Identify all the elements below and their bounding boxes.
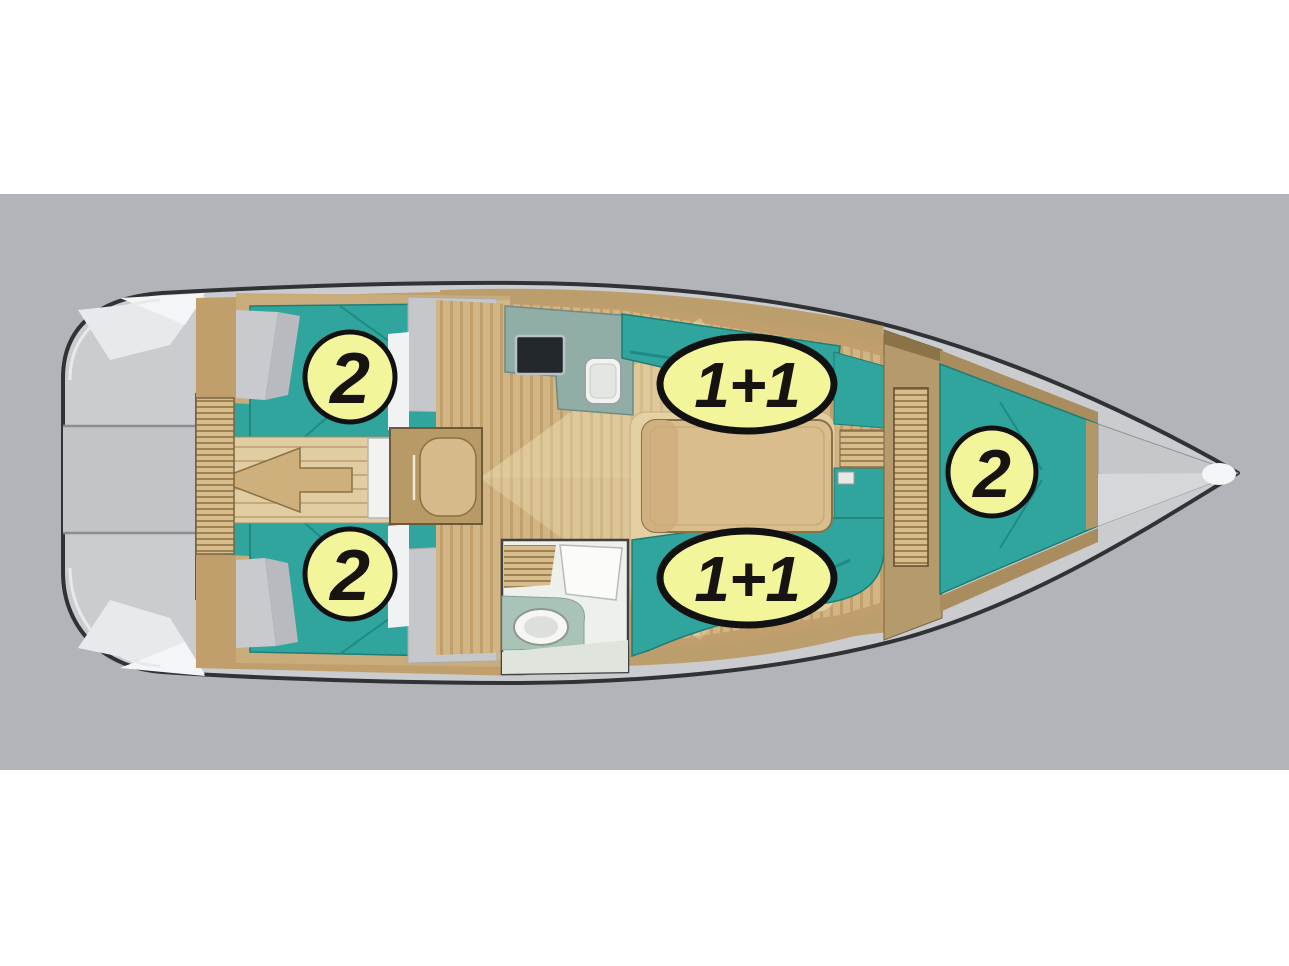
stove (516, 336, 564, 374)
stern-slat-step (196, 398, 234, 554)
salon-table (642, 420, 854, 532)
settee-cushion (834, 352, 884, 428)
berth-badge-aft-starboard: 2 (305, 529, 395, 619)
companionway-steps (390, 428, 482, 524)
stern-mid-panel (63, 426, 196, 533)
berth-badge-v-berth: 2 (948, 428, 1036, 516)
louvered-door (894, 388, 928, 566)
table-leaf (642, 420, 678, 532)
badge-label: 2 (328, 536, 370, 616)
head-sink-counter (560, 545, 622, 600)
badge-label: 2 (328, 339, 370, 419)
step-tread (420, 438, 476, 516)
floor-plan-canvas: 2 1+1 2 1+1 2 (0, 0, 1289, 966)
bow-tip-fitting (1202, 463, 1236, 485)
badge-label: 1+1 (694, 349, 800, 421)
sink-basin (590, 364, 616, 398)
bow-wood-sill (1086, 420, 1098, 530)
table-latch (838, 472, 854, 484)
head-wood-grate (504, 545, 556, 588)
berth-badge-salon-port: 1+1 (660, 337, 834, 431)
engine-box (368, 438, 390, 518)
forward-bulkhead (884, 330, 942, 640)
badge-label: 1+1 (694, 543, 800, 615)
berth-badge-salon-starboard: 1+1 (660, 531, 834, 625)
badge-label: 2 (971, 436, 1011, 512)
head-bathroom (502, 540, 628, 674)
toilet-bowl (524, 616, 558, 638)
boat-floor-plan: 2 1+1 2 1+1 2 (0, 0, 1289, 966)
berth-badge-aft-port: 2 (305, 332, 395, 422)
